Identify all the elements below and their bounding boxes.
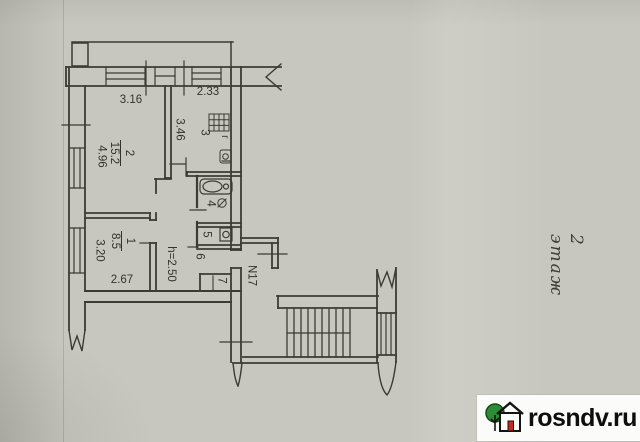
gas-mark: г	[218, 131, 230, 143]
floor-label: 2 этаж	[556, 234, 576, 308]
wall-break-icon	[233, 363, 242, 386]
room1-number: 1	[123, 238, 136, 244]
wall-break-icon	[377, 268, 396, 287]
partition-room2-room1	[85, 213, 150, 218]
dimension-top-room2: 3.16	[111, 94, 151, 108]
dimension-kitchen-depth: 3.46	[173, 112, 186, 148]
bathroom-walls	[188, 176, 241, 249]
balcony-door-icon	[155, 68, 175, 85]
apartment-number: N17	[245, 261, 258, 291]
room3-number: 3	[198, 126, 211, 140]
room7-number: 7	[215, 274, 228, 288]
room1-label: 1 8.5	[105, 221, 139, 261]
right-wall	[220, 67, 287, 362]
bottom-wall	[85, 291, 241, 302]
staircase	[233, 308, 396, 395]
window-icon	[69, 148, 85, 188]
stair-right-wall	[377, 268, 396, 362]
room2-label: 2 15.2	[104, 131, 138, 175]
upper-structure	[72, 42, 233, 67]
room2-area: 15.2	[107, 140, 121, 166]
bathtub-icon	[200, 179, 232, 194]
dimension-left-room1: 3.20	[93, 232, 106, 270]
top-exterior-wall	[66, 64, 281, 90]
partition-room1-hall	[140, 213, 156, 291]
ceiling-height-note: h=2.50	[163, 238, 177, 290]
stair-treads	[287, 308, 350, 357]
dimension-left-room2: 4.96	[95, 138, 108, 176]
room4-number: 4	[204, 197, 217, 211]
watermark-site-text: rosndv.ru	[528, 404, 637, 433]
stove-icon	[209, 114, 229, 131]
landing-walls	[241, 238, 378, 308]
room1-area: 8.5	[108, 231, 122, 251]
room5-number: 5	[200, 228, 213, 242]
room6-number: 6	[193, 250, 206, 264]
room2-number: 2	[122, 150, 135, 156]
left-exterior-wall	[69, 67, 85, 351]
window-icon	[192, 68, 221, 85]
partition-room2-kitchen	[155, 86, 171, 193]
dimension-top-room3: 2.33	[188, 86, 228, 100]
dimension-bottom-room1: 2.67	[102, 274, 142, 288]
window-icon	[106, 68, 145, 85]
house-logo-icon	[484, 397, 524, 439]
washbasin-icon	[218, 199, 226, 207]
watermark: rosndv.ru	[477, 395, 640, 441]
wall-break-icon	[69, 330, 85, 351]
floorplan-linework	[0, 0, 640, 442]
wall-break-icon	[378, 362, 396, 395]
window-icon	[69, 228, 85, 273]
